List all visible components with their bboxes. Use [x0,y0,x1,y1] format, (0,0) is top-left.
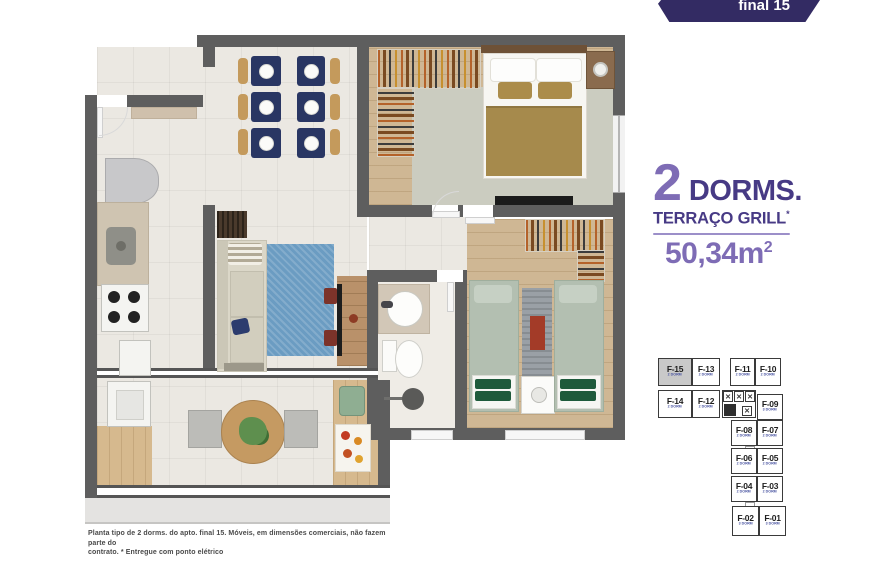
dorms-heading: 2 DORMS. [653,160,818,208]
keyplan-unit-f05: F-05 2 DORM [757,448,783,474]
unit-sub: 2 DORM [763,462,777,466]
disclaimer-line2: contrato. * Entregue com ponto elétrico [88,548,388,558]
keyplan-unit-f14: F-14 2 DORM [658,390,692,418]
dining-bench [330,129,340,155]
elevator-x: ✕ [744,407,750,415]
keyplan-unit-f09: F-09 3 DORM [757,394,783,420]
unit-sub: 2 DORM [761,373,775,377]
twin-bed [469,280,519,412]
unit-label: F-08 [736,426,752,434]
closet-rack [377,87,415,157]
twin-bed [554,280,604,412]
terrace-glass-rail [97,485,390,498]
double-bed [483,53,587,179]
unit-sub: 2 DORM [737,462,751,466]
unit-sub: 2 DORM [737,434,751,438]
dining-chair [251,128,281,158]
master-window [613,115,625,193]
disclaimer-line1: Planta tipo de 2 dorms. do apto. final 1… [88,529,388,548]
unit-label: F-06 [736,454,752,462]
keyplan-unit-f11: F-11 2 DORM [730,358,755,386]
wall-stub-top [203,47,215,67]
unit-label: F-09 [762,400,778,408]
closet-rack [377,49,481,89]
banner-label: final 15 [658,0,820,14]
plate [304,100,319,115]
bed-pillow [490,58,536,82]
rug-accent [530,316,545,350]
nightstand [586,51,615,89]
area-number: 50,34m [665,237,764,270]
unit-sub: 2 DORM [668,373,682,377]
dining-chair [251,56,281,86]
stair-block [724,404,736,416]
sofa-back [218,241,228,369]
divider-line [653,233,790,235]
green-pillow [560,391,596,401]
vase [349,314,358,323]
desk-chair [324,330,337,346]
keyplan-unit-f07: F-07 2 DORM [757,420,783,446]
kitchen-counter [97,202,149,286]
green-pillow [475,379,511,389]
unit-label: F-15 [667,365,683,373]
wall-left [85,95,97,498]
elevator-icon: ✕ [723,391,733,402]
dining-bench [238,94,248,120]
unit-label: F-01 [764,514,780,522]
bed-pillow [559,285,597,303]
unit-label: F-03 [762,482,778,490]
bathroom-door-opening [437,270,463,282]
tv-panel [217,211,247,238]
dishwasher [119,340,151,376]
unit-label: F-12 [698,397,714,405]
elevator-icon: ✕ [734,391,744,402]
unit-banner: final 15 [658,0,820,22]
dining-chair [297,56,325,86]
washing-machine [107,381,151,427]
feature-line: TERRAÇO GRILL* [653,209,818,229]
feature-text: TERRAÇO GRILL [653,210,786,228]
elevator-x: ✕ [725,393,731,401]
keyplan-unit-f13: F-13 2 DORM [692,358,720,386]
food-item [354,437,362,445]
washer-drum [116,390,144,420]
bed-pillow [536,58,582,82]
terrace-round-table [221,400,285,464]
area-sup: 2 [764,239,772,256]
plate [304,64,319,79]
unit-sub: 2 DORM [668,405,682,409]
entry-door-opening [97,95,127,107]
lamp [593,62,608,77]
unit-sub: 2 DORM [763,434,777,438]
elevator-x: ✕ [747,393,753,401]
keyplan-unit-f08: F-08 2 DORM [731,420,757,446]
bedroom2-door-opening [463,205,493,217]
sink-drain [116,241,126,251]
plate [259,64,274,79]
lamp [531,387,547,403]
kitchen-sink [106,227,136,265]
faucet [381,301,393,308]
master-tv [495,196,573,205]
bath-sink [387,291,423,327]
plate [304,136,319,151]
dining-bench [330,58,340,84]
tv-screen [337,284,342,356]
table-plant [239,417,267,445]
headboard [481,45,587,53]
nightstand [521,376,555,414]
green-pillow [475,391,511,401]
elevator-icon: ✕ [742,406,752,416]
terrace-slab [85,498,390,524]
building-keyplan: F-15 2 DORM F-13 2 DORM F-11 2 DORM F-10… [650,352,828,552]
unit-sub: 3 DORM [763,408,777,412]
keyplan-unit-f06: F-06 2 DORM [731,448,757,474]
keyplan-unit-f10: F-10 2 DORM [755,358,781,386]
unit-info-panel: 2 DORMS. TERRAÇO GRILL* 50,34m2 [653,160,818,271]
keyplan-unit-f02: F-02 3 DORM [732,506,759,536]
terrace-chair [188,410,222,448]
keyplan-unit-f01: F-01 3 DORM [759,506,786,536]
unit-label: F-04 [736,482,752,490]
bedroom2-window [505,430,585,440]
unit-sub: 3 DORM [738,522,752,526]
bathroom-door-leaf [447,282,454,312]
unit-label: F-05 [762,454,778,462]
unit-label: F-14 [667,397,683,405]
burner [128,291,140,303]
unit-label: F-13 [698,365,714,373]
burner [108,291,120,303]
sideboard [337,276,367,366]
sofa-pillow-striped [228,243,262,265]
gold-blanket [486,106,582,176]
dining-chair [251,92,281,122]
keyplan-unit-f15: F-15 2 DORM [658,358,692,386]
wall-living [203,205,215,371]
unit-sub: 2 DORM [763,490,777,494]
unit-sub: 2 DORM [735,373,749,377]
wall-bath-west [367,270,378,440]
plate [259,100,274,115]
bathroom-window [411,430,453,440]
fridge [105,158,159,204]
bed-pillow [474,285,512,303]
food-item [355,455,363,463]
area-value: 50,34m2 [653,237,818,271]
unit-sub: 3 DORM [765,522,779,526]
shower-drain [402,388,424,410]
keyplan-unit-f12: F-12 2 DORM [692,390,720,418]
wall-right [613,35,625,440]
unit-label: F-11 [735,365,751,373]
dining-chair [297,128,325,158]
window-glass-line [618,116,620,192]
dining-bench [238,58,248,84]
wall-bath-east [455,282,467,440]
wall-master-left [357,47,369,217]
terrace-chair [284,410,318,448]
entry-cabinet [131,107,197,119]
sofa-cushion [230,271,264,317]
floor-plan [85,28,625,523]
elevator-x: ✕ [736,393,742,401]
desk-chair [324,288,337,304]
bedroom2-runner-rug [522,288,552,376]
unit-sub: 2 DORM [699,405,713,409]
unit-label: F-07 [762,426,778,434]
shower-arm [384,397,404,400]
food-item [341,431,350,440]
bath-counter [378,284,430,334]
sofa [217,240,267,372]
unit-sub: 2 DORM [699,373,713,377]
closet-rack [577,250,605,282]
toilet-bowl [395,340,423,378]
dining-bench [238,129,248,155]
burner [108,311,120,323]
wall-master-south-a [357,205,432,217]
gold-pillow [498,82,532,99]
gold-pillow [538,82,572,99]
food-tray [335,424,371,472]
dorms-word: DORMS. [689,175,802,208]
unit-sub: 2 DORM [737,490,751,494]
food-item [343,449,352,458]
keyplan-unit-f03: F-03 2 DORM [757,476,783,502]
elevator-icon: ✕ [745,391,755,402]
stove [101,284,149,332]
closet-rack [525,219,605,252]
green-pillow [560,379,596,389]
grill [339,386,365,416]
plate [259,136,274,151]
dorms-number: 2 [653,160,682,206]
sofa-arm [224,363,264,371]
unit-label: F-02 [737,514,753,522]
unit-label: F-10 [760,365,776,373]
dining-bench [330,94,340,120]
feature-asterisk: * [786,209,789,219]
dining-chair [297,92,325,122]
keyplan-unit-f04: F-04 2 DORM [731,476,757,502]
bedroom2-door-leaf [465,217,495,224]
disclaimer: Planta tipo de 2 dorms. do apto. final 1… [88,529,388,558]
burner [128,311,140,323]
